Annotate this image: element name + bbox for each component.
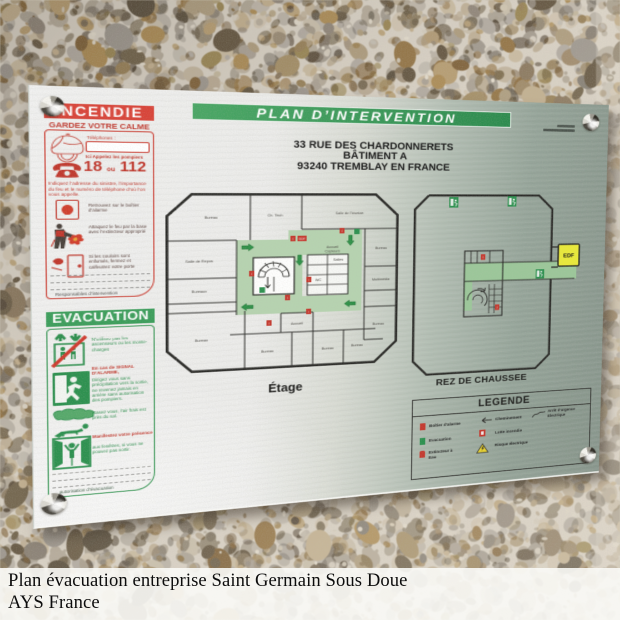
svg-text:I: I: [308, 310, 309, 313]
svg-text:Copieurs: Copieurs: [325, 249, 340, 253]
svg-text:Bureau: Bureau: [205, 215, 219, 219]
svg-text:Bureau: Bureau: [375, 246, 387, 250]
svg-text:I: I: [251, 273, 252, 276]
svg-text:Bureau: Bureau: [322, 346, 335, 351]
svg-text:I: I: [287, 296, 288, 299]
svg-text:Salle de Repos: Salle de Repos: [185, 259, 213, 264]
svg-text:Ch. Tech: Ch. Tech: [268, 213, 284, 217]
svg-text:Accueil: Accueil: [291, 321, 303, 326]
svg-text:Multimédia: Multimédia: [372, 277, 390, 281]
svg-text:I: I: [308, 278, 309, 281]
svg-text:WC: WC: [315, 278, 321, 282]
svg-text:EDF: EDF: [563, 252, 574, 259]
svg-text:Bureau: Bureau: [195, 338, 209, 343]
svg-text:I: I: [497, 306, 498, 309]
svg-text:I: I: [269, 322, 270, 325]
svg-text:Salles: Salles: [333, 257, 343, 261]
svg-text:I: I: [293, 237, 294, 240]
svg-text:Bureau: Bureau: [351, 343, 363, 348]
svg-text:I: I: [483, 256, 484, 259]
svg-text:I: I: [342, 230, 343, 233]
svg-text:Salle de Réunion: Salle de Réunion: [335, 211, 364, 215]
svg-text:EDF: EDF: [299, 237, 305, 240]
svg-text:Bureaux: Bureaux: [192, 289, 208, 294]
svg-text:Bureau: Bureau: [261, 349, 274, 354]
svg-text:Bureau: Bureau: [372, 321, 384, 325]
